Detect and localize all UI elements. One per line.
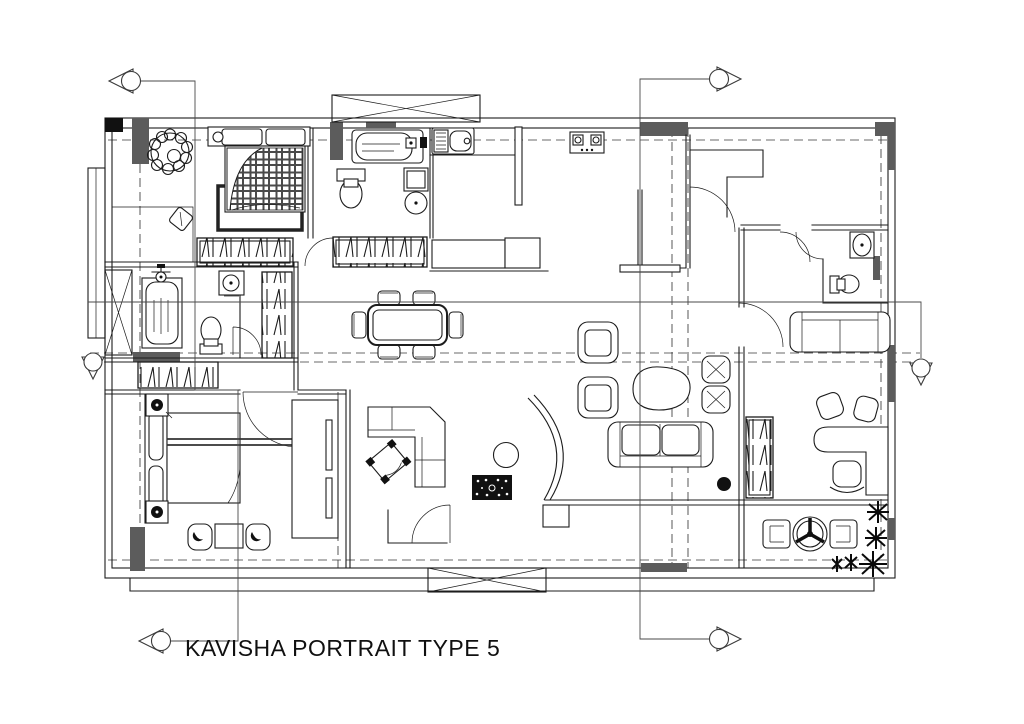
- single-bed: [145, 395, 317, 523]
- dining-table: [368, 305, 447, 345]
- floor-plan-canvas: KAVISHA PORTRAIT TYPE 5: [0, 0, 1024, 724]
- powder-toilet: [830, 275, 859, 293]
- rotated-armchair: [365, 439, 411, 484]
- x-ottoman-1: [702, 356, 730, 383]
- balcony-chair-2: [830, 520, 857, 548]
- family-room: [365, 407, 518, 500]
- tall-wardrobe-living: [746, 417, 773, 498]
- lift-shaft: [105, 270, 132, 355]
- curved-partition: [528, 395, 563, 500]
- round-balcony-table: [793, 517, 827, 551]
- section-marker-top-left: [109, 69, 141, 93]
- bedroom2: [145, 394, 338, 550]
- toilet-utility: [200, 317, 222, 354]
- side-table-bedroom2: [215, 524, 243, 548]
- lounge-chair-2: [246, 524, 270, 550]
- decorative-black-rug: [472, 475, 512, 500]
- coffee-table: [633, 367, 690, 410]
- round-side-table: [494, 443, 519, 468]
- planter-box-bottom: [428, 568, 546, 592]
- section-marker-bottom-left: [139, 629, 171, 653]
- tall-wardrobe-utility: [262, 272, 292, 358]
- kitchen-sink: [432, 128, 474, 154]
- armchair-2: [578, 377, 618, 418]
- section-marker-top-right: [710, 67, 742, 91]
- level-marker-right: [910, 359, 932, 385]
- powder-room: [830, 232, 874, 293]
- section-marker-bottom-right: [710, 627, 742, 651]
- bathtub: [352, 130, 427, 163]
- powder-basin: [850, 232, 874, 258]
- dining-area: [352, 291, 463, 359]
- three-seat-sofa: [608, 422, 713, 467]
- two-seat-sofa: [790, 312, 890, 352]
- study: [814, 391, 888, 495]
- bedside-lamp-2: [146, 501, 168, 523]
- wardrobe-shelf-unit-1: [197, 238, 293, 266]
- cooktop: [570, 132, 604, 153]
- spiral-plant: [148, 129, 193, 175]
- balcony-right: [763, 501, 889, 577]
- floor-plan-svg: KAVISHA PORTRAIT TYPE 5: [0, 0, 1024, 724]
- wardrobe-shelf-unit-2: [333, 237, 427, 267]
- shower: [142, 264, 182, 348]
- washbasin-utility: [219, 271, 244, 296]
- office-chair: [830, 461, 864, 493]
- bedside-lamp-1: [146, 394, 172, 418]
- lounge-chair-1: [188, 524, 212, 550]
- x-ottoman-2: [702, 386, 730, 413]
- guest-chair-1: [815, 391, 846, 422]
- balcony-chair-1: [763, 520, 790, 548]
- bedroom1: [148, 127, 311, 232]
- bathroom1: [337, 130, 428, 214]
- utility-block: [142, 264, 244, 354]
- double-bed: [208, 127, 310, 212]
- guest-chair-2: [852, 395, 879, 424]
- dresser-stool: [168, 206, 193, 231]
- toilet-bath1: [337, 169, 365, 208]
- washbasin-bath1: [404, 168, 428, 214]
- wardrobe-shelf-unit-3: [138, 362, 218, 388]
- bedroom2-wardrobe: [292, 400, 338, 538]
- drawing-title: KAVISHA PORTRAIT TYPE 5: [185, 635, 500, 661]
- floor-lamp-dot: [717, 477, 731, 491]
- armchair-1: [578, 322, 618, 363]
- level-marker-left: [82, 353, 104, 379]
